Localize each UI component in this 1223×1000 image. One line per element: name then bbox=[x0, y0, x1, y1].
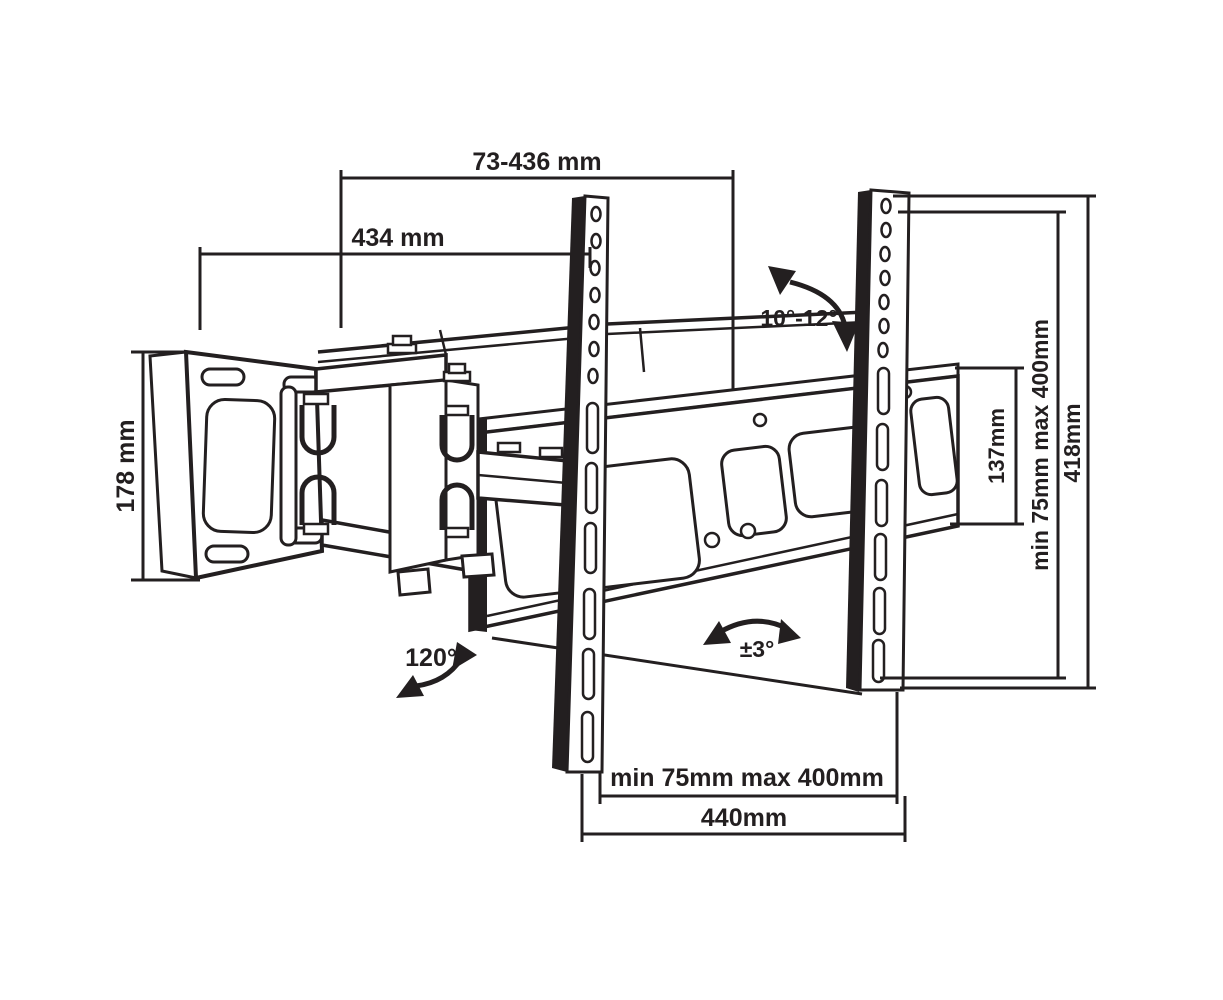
plate-cutout bbox=[203, 399, 276, 533]
angle-level-adjust: ±3° bbox=[703, 619, 801, 662]
mount-slot bbox=[202, 369, 244, 385]
page: 73-436 mm 434 mm 178 mm 137mm min 75mm m… bbox=[0, 0, 1223, 1000]
arrowhead-icon bbox=[778, 619, 801, 644]
technical-drawing: 73-436 mm 434 mm 178 mm 137mm min 75mm m… bbox=[0, 0, 1223, 1000]
wall-plate bbox=[150, 352, 322, 578]
angle-level-adjust-label: ±3° bbox=[740, 636, 775, 662]
bracket-cutout bbox=[720, 445, 788, 537]
dim-vesa-vertical-label: min 75mm max 400mm bbox=[1027, 319, 1053, 571]
dim-bracket-end-height-label: 137mm bbox=[984, 408, 1009, 484]
dim-bracket-width-label: 440mm bbox=[701, 804, 787, 832]
angle-swivel-label: 120° bbox=[405, 644, 457, 672]
dim-arm-reach-label: 434 mm bbox=[351, 224, 444, 252]
mount-slot bbox=[206, 546, 248, 562]
angle-tilt-label: 10°-12° bbox=[760, 305, 837, 331]
dim-arm-reach: 434 mm bbox=[200, 224, 590, 330]
dim-vesa-horizontal: min 75mm max 400mm bbox=[600, 692, 897, 804]
dim-wall-plate-height-label: 178 mm bbox=[112, 419, 140, 512]
dim-extension-range-label: 73-436 mm bbox=[472, 148, 601, 176]
dim-vesa-horizontal-label: min 75mm max 400mm bbox=[610, 764, 884, 792]
arrowhead-icon bbox=[703, 621, 731, 645]
right-vesa-rail bbox=[846, 190, 909, 692]
dim-rail-height-label: 418mm bbox=[1059, 403, 1085, 482]
angle-swivel: 120° bbox=[396, 642, 477, 698]
angle-tilt: 10°-12° bbox=[760, 266, 859, 352]
dim-bracket-end-height: 137mm bbox=[950, 368, 1024, 524]
